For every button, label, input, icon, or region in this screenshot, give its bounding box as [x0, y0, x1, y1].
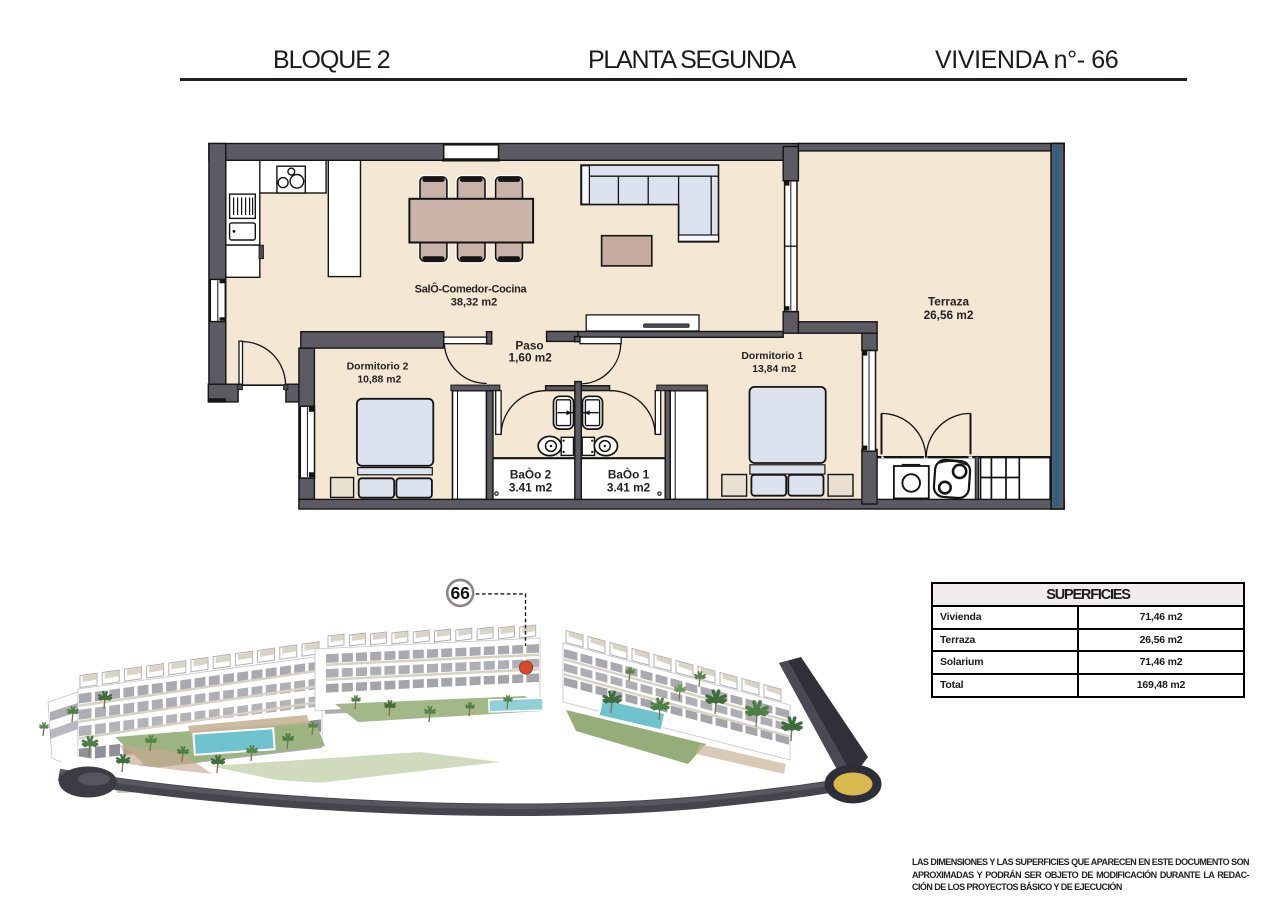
svg-text:10,88 m2: 10,88 m2: [357, 375, 401, 386]
svg-text:BaÒo 2: BaÒo 2: [510, 468, 552, 482]
svg-text:1,60 m2: 1,60 m2: [509, 351, 553, 365]
svg-text:13,84 m2: 13,84 m2: [752, 364, 796, 375]
svg-text:26,56 m2: 26,56 m2: [924, 308, 974, 322]
svg-text:Terraza: Terraza: [928, 295, 970, 309]
svg-text:Dormitorio 2: Dormitorio 2: [347, 361, 409, 372]
svg-text:BaÒo 1: BaÒo 1: [608, 468, 650, 482]
svg-text:SalÔ-Comedor-Cocina: SalÔ-Comedor-Cocina: [415, 283, 528, 296]
svg-text:3.41 m2: 3.41 m2: [607, 481, 651, 495]
svg-text:Dormitorio 1: Dormitorio 1: [741, 351, 803, 362]
svg-text:66: 66: [450, 583, 470, 603]
svg-text:38,32 m2: 38,32 m2: [451, 297, 497, 309]
svg-text:3.41 m2: 3.41 m2: [509, 481, 553, 495]
